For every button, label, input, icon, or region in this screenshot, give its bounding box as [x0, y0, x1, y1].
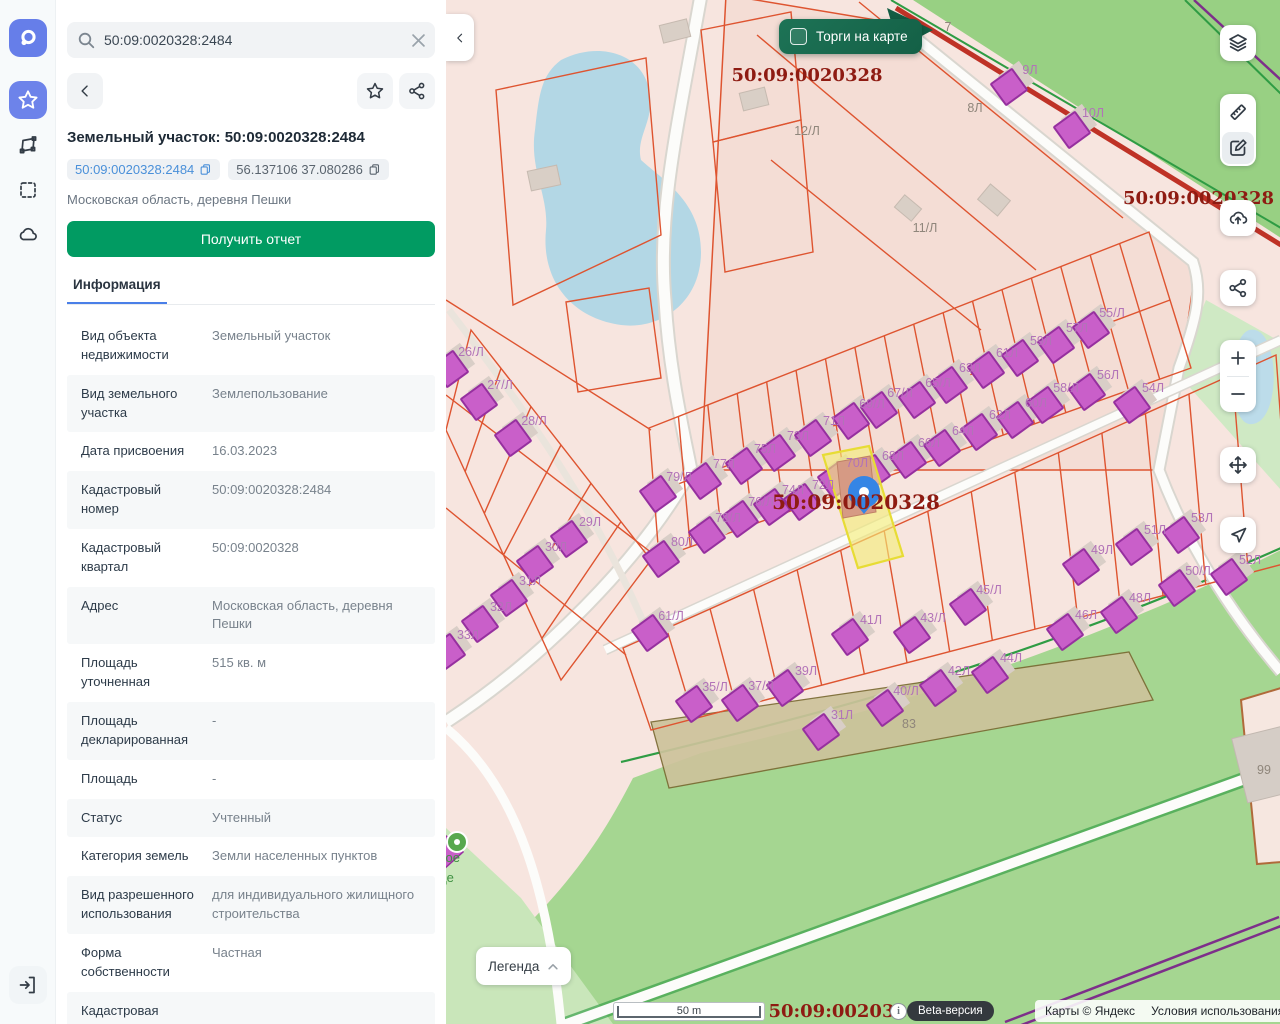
svg-text:71Л: 71Л	[823, 414, 845, 428]
sidebar-item-cloud[interactable]	[9, 216, 47, 254]
svg-text:61/Л: 61/Л	[658, 609, 684, 623]
app-logo[interactable]	[9, 19, 47, 57]
info-row-value: Частная	[212, 944, 421, 982]
object-address: Московская область, деревня Пешки	[67, 192, 435, 207]
info-row-label: Категория земель	[81, 847, 212, 866]
beta-badge: Beta-версия	[907, 1001, 994, 1021]
search-input[interactable]	[102, 31, 412, 49]
svg-text:64Л: 64Л	[952, 424, 974, 438]
map-share-button[interactable]	[1220, 270, 1256, 306]
svg-text:50:09:0020328: 50:09:0020328	[731, 65, 882, 86]
move-icon	[1227, 454, 1249, 476]
map-canvas[interactable]: 50:09:002032850:09:002032850:09:00203285…	[446, 0, 1280, 1024]
exit-icon	[16, 973, 40, 997]
info-row-label: Вид земельного участка	[81, 385, 212, 423]
info-row-label: Дата присвоения	[81, 442, 212, 461]
checkbox-icon[interactable]	[790, 28, 807, 45]
svg-text:83: 83	[902, 717, 916, 731]
svg-text:79/Л: 79/Л	[666, 470, 692, 484]
map-image[interactable]: 50:09:002032850:09:002032850:09:00203285…	[446, 0, 1280, 1024]
svg-text:66Л: 66Л	[918, 436, 940, 450]
info-row-label: Кадастровая	[81, 1002, 212, 1021]
info-row: Вид объекта недвижимостиЗемельный участо…	[67, 317, 435, 375]
svg-text:59Л: 59Л	[1030, 334, 1052, 348]
legend-label: Легенда	[488, 959, 539, 974]
svg-text:73Л: 73Л	[787, 429, 809, 443]
sidebar-item-polygon[interactable]	[9, 126, 47, 164]
info-row: Вид земельного участкаЗемлепользование	[67, 375, 435, 433]
svg-text:68Л: 68Л	[882, 449, 904, 463]
svg-text:65/Л: 65/Л	[925, 376, 951, 390]
svg-text:43/Л: 43/Л	[920, 611, 946, 625]
legend-button[interactable]: Легенда	[476, 947, 571, 985]
yandex-copyright[interactable]: Карты © Яндекс	[1045, 1004, 1135, 1018]
svg-text:76/Л: 76/Л	[748, 495, 774, 509]
polygon-icon	[16, 133, 40, 157]
info-row-label: Кадастровый квартал	[81, 539, 212, 577]
svg-text:9Л: 9Л	[1022, 63, 1037, 77]
scale-bar: 50 m	[613, 1002, 765, 1021]
chevron-left-icon	[453, 31, 467, 45]
svg-text:75Л: 75Л	[754, 442, 776, 456]
share-icon	[1227, 277, 1249, 299]
copy-icon[interactable]	[368, 163, 381, 176]
svg-text:67/Л: 67/Л	[887, 386, 913, 400]
svg-text:26/Л: 26/Л	[458, 345, 484, 359]
info-row-value: для индивидуального жилищного строительс…	[212, 886, 421, 924]
svg-text:56Л: 56Л	[1097, 368, 1119, 382]
svg-text:80Л: 80Л	[671, 535, 693, 549]
svg-text:31Л: 31Л	[519, 574, 541, 588]
svg-text:60Л: 60Л	[1025, 396, 1047, 410]
sidebar-item-favorites[interactable]	[9, 81, 47, 119]
svg-text:52Л: 52Л	[1239, 553, 1261, 567]
logout-button[interactable]	[9, 966, 47, 1004]
tabs-bar: Информация	[67, 277, 435, 305]
info-icon[interactable]: i	[890, 1003, 907, 1020]
object-header-toolbar	[67, 73, 435, 109]
info-row-label: Площадь уточненная	[81, 654, 212, 692]
svg-text:70Л: 70Л	[846, 456, 868, 470]
svg-text:27/Л: 27/Л	[487, 378, 513, 392]
back-button[interactable]	[67, 73, 103, 109]
chevron-up-icon	[547, 962, 559, 971]
svg-text:10Л: 10Л	[1082, 106, 1104, 120]
info-row-value: 515 кв. м	[212, 654, 421, 692]
favorite-button[interactable]	[357, 73, 393, 109]
svg-text:78/Л: 78/Л	[715, 511, 741, 525]
info-row-label: Вид объекта недвижимости	[81, 327, 212, 365]
svg-text:69/Л: 69/Л	[859, 397, 885, 411]
svg-text:48Л: 48Л	[1129, 591, 1151, 605]
svg-text:58/Л: 58/Л	[1053, 381, 1079, 395]
chips-row: 50:09:0020328:2484 56.137106 37.080286	[67, 159, 435, 180]
info-row-value: -	[212, 712, 421, 750]
ruler-icon	[1227, 101, 1249, 123]
navigation-arrow-icon	[1227, 524, 1249, 546]
info-row: Кадастровый номер50:09:0020328:2484	[67, 471, 435, 529]
star-icon	[16, 88, 40, 112]
info-row-value	[212, 1002, 421, 1021]
svg-text:62Л: 62Л	[989, 408, 1011, 422]
svg-text:29Л: 29Л	[579, 515, 601, 529]
svg-text:72Л: 72Л	[812, 478, 834, 492]
locate-button[interactable]	[1220, 517, 1256, 553]
svg-text:49Л: 49Л	[1091, 543, 1113, 557]
tab-information[interactable]: Информация	[67, 277, 167, 304]
info-row: Площадь-	[67, 760, 435, 799]
cadastral-number-chip[interactable]: 50:09:0020328:2484	[67, 159, 220, 180]
copy-icon[interactable]	[199, 163, 212, 176]
svg-text:77Л: 77Л	[713, 457, 735, 471]
icon-rail	[0, 0, 56, 1024]
svg-text:31Л: 31Л	[831, 708, 853, 722]
coordinates-chip[interactable]: 56.137106 37.080286	[228, 159, 389, 180]
draw-button[interactable]	[1222, 132, 1254, 164]
chevron-left-icon	[76, 82, 94, 100]
info-row-value: Учтенный	[212, 809, 421, 828]
plus-icon	[1227, 347, 1249, 369]
svg-text:8Л: 8Л	[967, 101, 982, 115]
info-row-value: -	[212, 770, 421, 789]
ruler-button[interactable]	[1220, 94, 1256, 130]
map-attribution: Карты © Яндекс Условия использования	[1035, 1000, 1280, 1022]
cadastral-number-link[interactable]: 50:09:0020328:2484	[75, 162, 194, 177]
star-icon	[365, 81, 385, 101]
svg-text:54Л: 54Л	[1142, 381, 1164, 395]
info-row: Форма собственностиЧастная	[67, 934, 435, 992]
pan-button[interactable]	[1220, 447, 1256, 483]
svg-text:51Л: 51Л	[1144, 523, 1166, 537]
search-box	[67, 22, 435, 58]
svg-text:7: 7	[945, 20, 952, 34]
svg-text:40/Л: 40/Л	[893, 684, 919, 698]
svg-text:ояное: ояное	[446, 850, 460, 865]
zoom-out-button[interactable]	[1220, 376, 1256, 412]
upload-button[interactable]	[1220, 200, 1256, 236]
info-row-label: Площадь декларированная	[81, 712, 212, 750]
terms-link[interactable]: Условия использования	[1151, 1004, 1280, 1018]
zoom-controls	[1220, 340, 1256, 412]
svg-text:32Л: 32Л	[490, 600, 512, 614]
info-row-value: Земельный участок	[212, 327, 421, 365]
svg-text:39Л: 39Л	[795, 664, 817, 678]
auctions-toggle[interactable]: Торги на карте	[779, 19, 922, 54]
info-row: Площадь декларированная-	[67, 702, 435, 760]
dashed-square-icon	[16, 178, 40, 202]
svg-text:61Л: 61Л	[996, 346, 1018, 360]
info-row: Кадастровая	[67, 992, 435, 1024]
info-row-value: Земли населенных пунктов	[212, 847, 421, 866]
scale-label: 50 m	[677, 1005, 701, 1017]
minus-icon	[1227, 383, 1249, 405]
svg-text:46Л: 46Л	[1075, 608, 1097, 622]
measure-draw-group	[1220, 94, 1256, 166]
info-row-label: Площадь	[81, 770, 212, 789]
info-row: Категория земельЗемли населенных пунктов	[67, 837, 435, 876]
info-row: Вид разрешенного использованиядля индиви…	[67, 876, 435, 934]
svg-text:55/Л: 55/Л	[1099, 306, 1125, 320]
info-row-value: Московская область, деревня Пешки	[212, 597, 421, 635]
svg-text:28/Л: 28/Л	[521, 414, 547, 428]
info-row-label: Вид разрешенного использования	[81, 886, 212, 924]
svg-text:53Л: 53Л	[1191, 511, 1213, 525]
svg-text:44Л: 44Л	[1000, 651, 1022, 665]
layers-icon	[1227, 32, 1249, 54]
svg-text:37/Л: 37/Л	[748, 679, 774, 693]
share-button[interactable]	[399, 73, 435, 109]
info-row-value: Землепользование	[212, 385, 421, 423]
page-title: Земельный участок: 50:09:0020328:2484	[67, 129, 435, 146]
info-table: Вид объекта недвижимостиЗемельный участо…	[67, 317, 435, 1024]
svg-text:33Л: 33Л	[457, 628, 479, 642]
svg-text:63Л: 63Л	[959, 361, 981, 375]
svg-text:50/Л: 50/Л	[1185, 564, 1211, 578]
info-row-label: Статус	[81, 809, 212, 828]
svg-text:74Л: 74Л	[782, 483, 804, 497]
info-row-value: 50:09:0020328	[212, 539, 421, 577]
clear-icon[interactable]	[412, 34, 425, 47]
zoom-in-button[interactable]	[1220, 340, 1256, 376]
collapse-panel-button[interactable]	[446, 14, 474, 61]
svg-text:11/Л: 11/Л	[913, 221, 938, 235]
info-row-label: Кадастровый номер	[81, 481, 212, 519]
svg-text:41Л: 41Л	[860, 613, 882, 627]
svg-text:ытце: ытце	[446, 870, 454, 885]
logo-icon	[16, 26, 40, 50]
layers-button[interactable]	[1220, 25, 1256, 61]
svg-text:35/Л: 35/Л	[702, 680, 728, 694]
get-report-button[interactable]: Получить отчет	[67, 221, 435, 257]
share-icon	[407, 81, 427, 101]
info-row-value: 50:09:0020328:2484	[212, 481, 421, 519]
search-icon	[77, 31, 95, 49]
svg-text:42Л: 42Л	[948, 664, 970, 678]
cloud-upload-icon	[1227, 207, 1249, 229]
svg-text:12/Л: 12/Л	[794, 124, 820, 138]
info-row-label: Адрес	[81, 597, 212, 635]
svg-text:99: 99	[1257, 763, 1271, 777]
info-row: АдресМосковская область, деревня Пешки	[67, 587, 435, 645]
app-window: Земельный участок: 50:09:0020328:2484 50…	[0, 0, 1280, 1024]
info-row: Площадь уточненная515 кв. м	[67, 644, 435, 702]
info-row-value: 16.03.2023	[212, 442, 421, 461]
sidebar-item-area-select[interactable]	[9, 171, 47, 209]
svg-text:57Л: 57Л	[1066, 321, 1088, 335]
edit-icon	[1227, 137, 1249, 159]
svg-text:30Л: 30Л	[545, 540, 567, 554]
info-row: СтатусУчтенный	[67, 799, 435, 838]
info-row-label: Форма собственности	[81, 944, 212, 982]
info-row: Дата присвоения16.03.2023	[67, 432, 435, 471]
cloud-icon	[16, 223, 40, 247]
info-row: Кадастровый квартал50:09:0020328	[67, 529, 435, 587]
coordinates-value: 56.137106 37.080286	[236, 162, 363, 177]
auctions-toggle-label: Торги на карте	[816, 29, 908, 44]
sidebar-panel: Земельный участок: 50:09:0020328:2484 50…	[56, 0, 446, 1024]
svg-text:45/Л: 45/Л	[976, 583, 1002, 597]
